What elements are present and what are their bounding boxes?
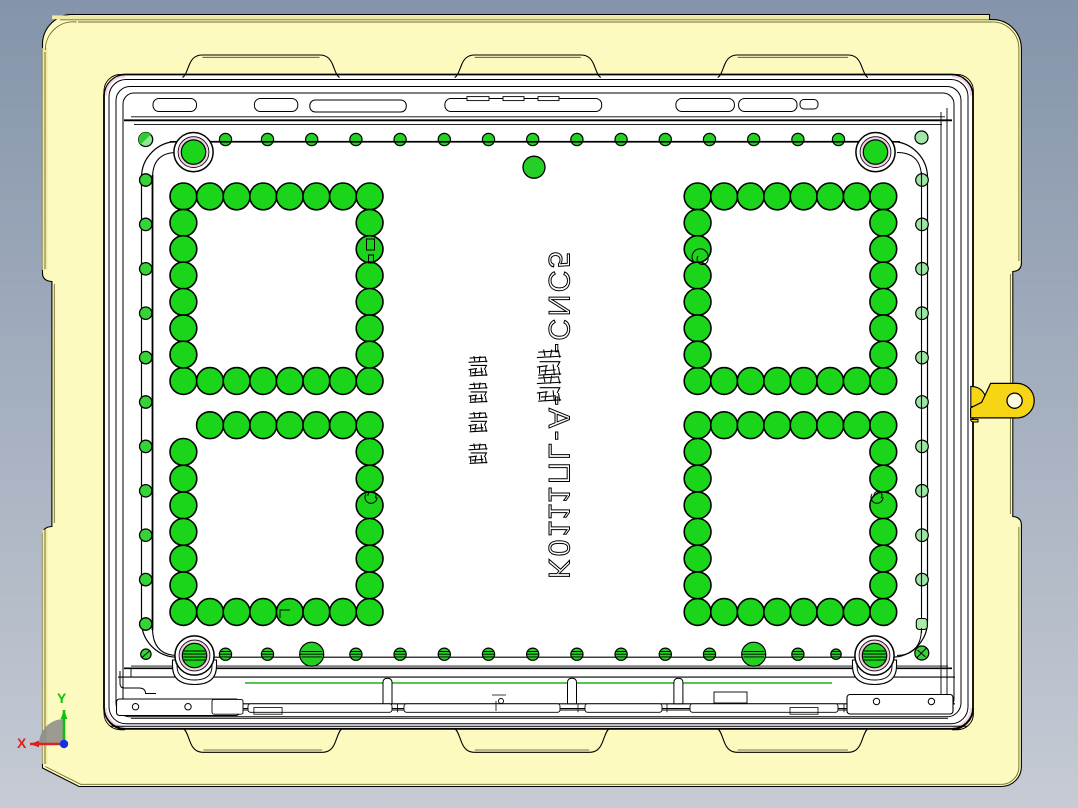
svg-text:Y: Y xyxy=(57,690,67,706)
svg-text:K0111ΠL-A--CNC5: K0111ΠL-A--CNC5 xyxy=(542,249,575,579)
svg-text:X: X xyxy=(17,735,27,751)
